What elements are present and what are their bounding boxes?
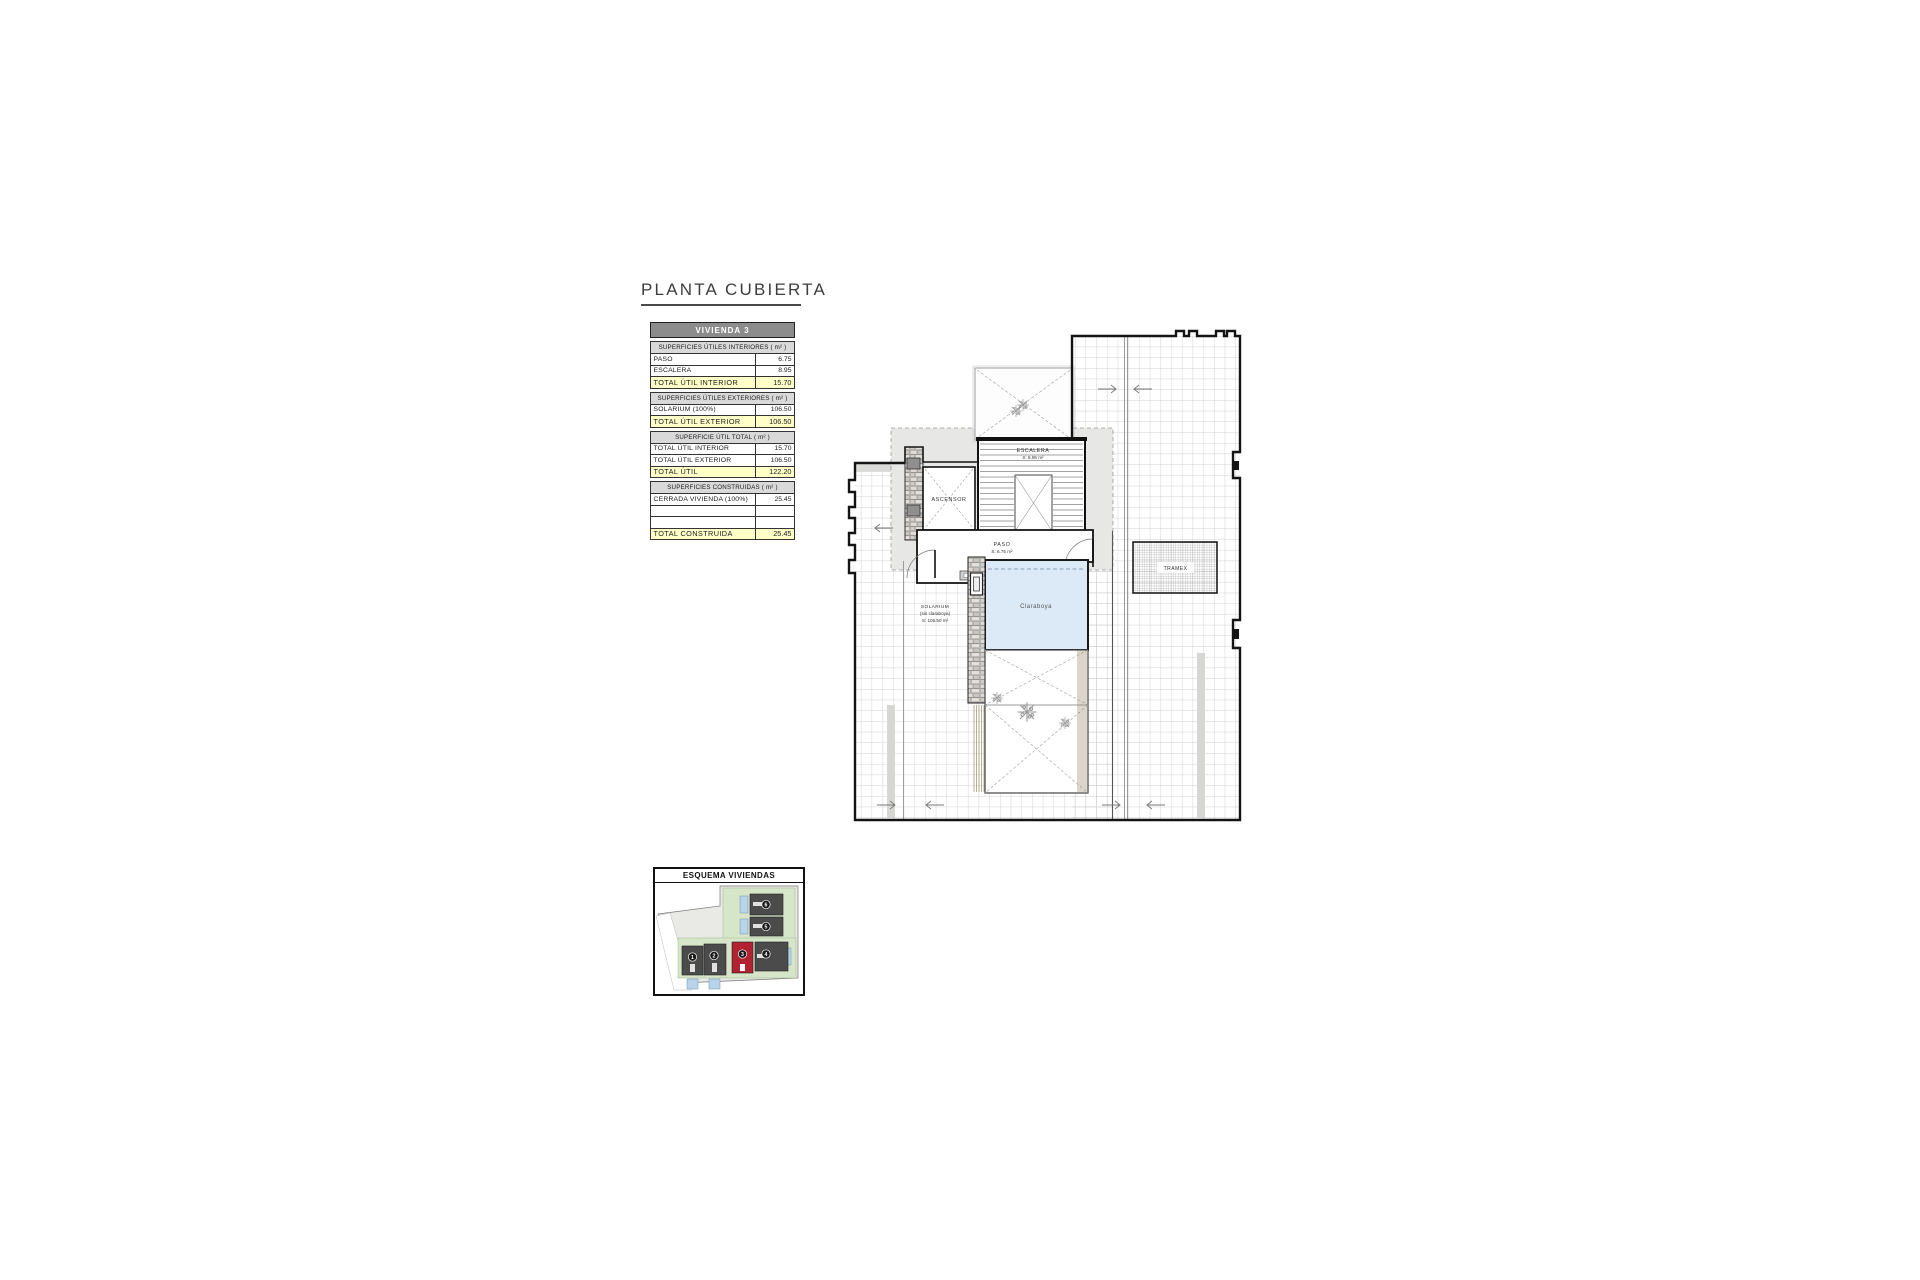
table-section-interiores: SUPERFICIES ÚTILES INTERIORES ( m² ) PAS…: [650, 341, 795, 389]
room-area-escalera: S: 8.95 m²: [1022, 455, 1044, 460]
svg-text:S: 106.50 m²: S: 106.50 m²: [922, 618, 949, 623]
unit-number: 4: [765, 951, 768, 957]
unit-number: 2: [713, 953, 716, 959]
table-row-empty: [651, 506, 794, 518]
solarium-label: SOLARIUM (sin claraboya) S: 106.50 m²: [920, 604, 951, 623]
pier-post: [907, 458, 920, 469]
unit-number-highlighted: 3: [741, 951, 744, 957]
section-title: SUPERFICIES ÚTILES INTERIORES ( m² ): [651, 342, 794, 354]
plant-icon: [1059, 717, 1071, 729]
room-label-ascensor: ASCENSOR: [931, 497, 966, 503]
plant-icon: [1017, 399, 1029, 411]
terrace-strip: [887, 705, 895, 818]
floor-plan: ESCALERA S: 8.95 m² ASCENSOR PASO S: 6.7…: [840, 315, 1250, 825]
esquema-viviendas: ESQUEMA VIVIENDAS: [653, 867, 805, 996]
table-row: TOTAL ÚTIL EXTERIOR 106.50: [651, 455, 794, 467]
surface-table: VIVIENDA 3 SUPERFICIES ÚTILES INTERIORES…: [650, 322, 795, 540]
table-row: PASO 6.75: [651, 354, 794, 366]
section-title: SUPERFICIES CONSTRUIDAS ( m² ): [651, 482, 794, 494]
svg-text:SOLARIUM: SOLARIUM: [921, 604, 949, 610]
table-row-total: TOTAL ÚTIL INTERIOR 15.70: [651, 377, 794, 388]
table-section-util-total: SUPERFICIE ÚTIL TOTAL ( m² ) TOTAL ÚTIL …: [650, 431, 795, 479]
upper-skylight: [973, 366, 1074, 442]
esquema-map: 1 2 3 4 5 6: [656, 884, 802, 994]
table-row: SOLARIUM (100%) 106.50: [651, 405, 794, 417]
pier-post: [907, 505, 920, 516]
table-row-total: TOTAL ÚTIL EXTERIOR 106.50: [651, 416, 794, 427]
stair-room: ESCALERA S: 8.95 m²: [976, 438, 1087, 532]
section-title: SUPERFICIES ÚTILES EXTERIORES ( m² ): [651, 393, 794, 405]
table-section-construidas: SUPERFICIES CONSTRUIDAS ( m² ) CERRADA V…: [650, 481, 795, 540]
title-underline: [641, 304, 801, 306]
elevator-room: ASCENSOR: [923, 467, 975, 530]
room-label-escalera: ESCALERA: [1017, 448, 1050, 454]
plant-icon: [1017, 702, 1036, 721]
roof-strip: [1197, 653, 1205, 818]
section-title: SUPERFICIE ÚTIL TOTAL ( m² ): [651, 432, 794, 444]
unit-number: 5: [765, 924, 768, 930]
room-area-paso: S: 6.75 m²: [991, 549, 1013, 554]
page-title: PLANTA CUBIERTA: [641, 280, 827, 300]
esquema-title: ESQUEMA VIVIENDAS: [655, 869, 803, 883]
tramex: TRAMEX: [1133, 542, 1217, 593]
table-row: CERRADA VIVIENDA (100%) 25.45: [651, 494, 794, 506]
room-label-paso: PASO: [994, 542, 1011, 548]
svg-text:(sin claraboya): (sin claraboya): [920, 611, 951, 616]
table-row-total: TOTAL CONSTRUIDA 25.45: [651, 529, 794, 540]
table-header: VIVIENDA 3: [650, 322, 795, 338]
table-row-empty: [651, 517, 794, 529]
table-row: TOTAL ÚTIL INTERIOR 15.70: [651, 444, 794, 456]
plant-icon: [1010, 405, 1022, 417]
table-section-exteriores: SUPERFICIES ÚTILES EXTERIORES ( m² ) SOL…: [650, 392, 795, 428]
room-label-claraboya: Claraboya: [1020, 604, 1052, 610]
table-row-total: TOTAL ÚTIL 122.20: [651, 467, 794, 478]
sheet: PLANTA CUBIERTA VIVIENDA 3 SUPERFICIES Ú…: [0, 0, 1920, 1280]
stone-wall: [968, 557, 985, 703]
unit-number: 1: [691, 954, 694, 960]
table-row: ESCALERA 8.95: [651, 366, 794, 378]
room-label-tramex: TRAMEX: [1164, 566, 1188, 572]
unit-number: 6: [765, 902, 768, 908]
claraboya: Claraboya: [985, 560, 1088, 650]
lower-void: [974, 650, 1088, 793]
plant-icon: [991, 692, 1003, 704]
